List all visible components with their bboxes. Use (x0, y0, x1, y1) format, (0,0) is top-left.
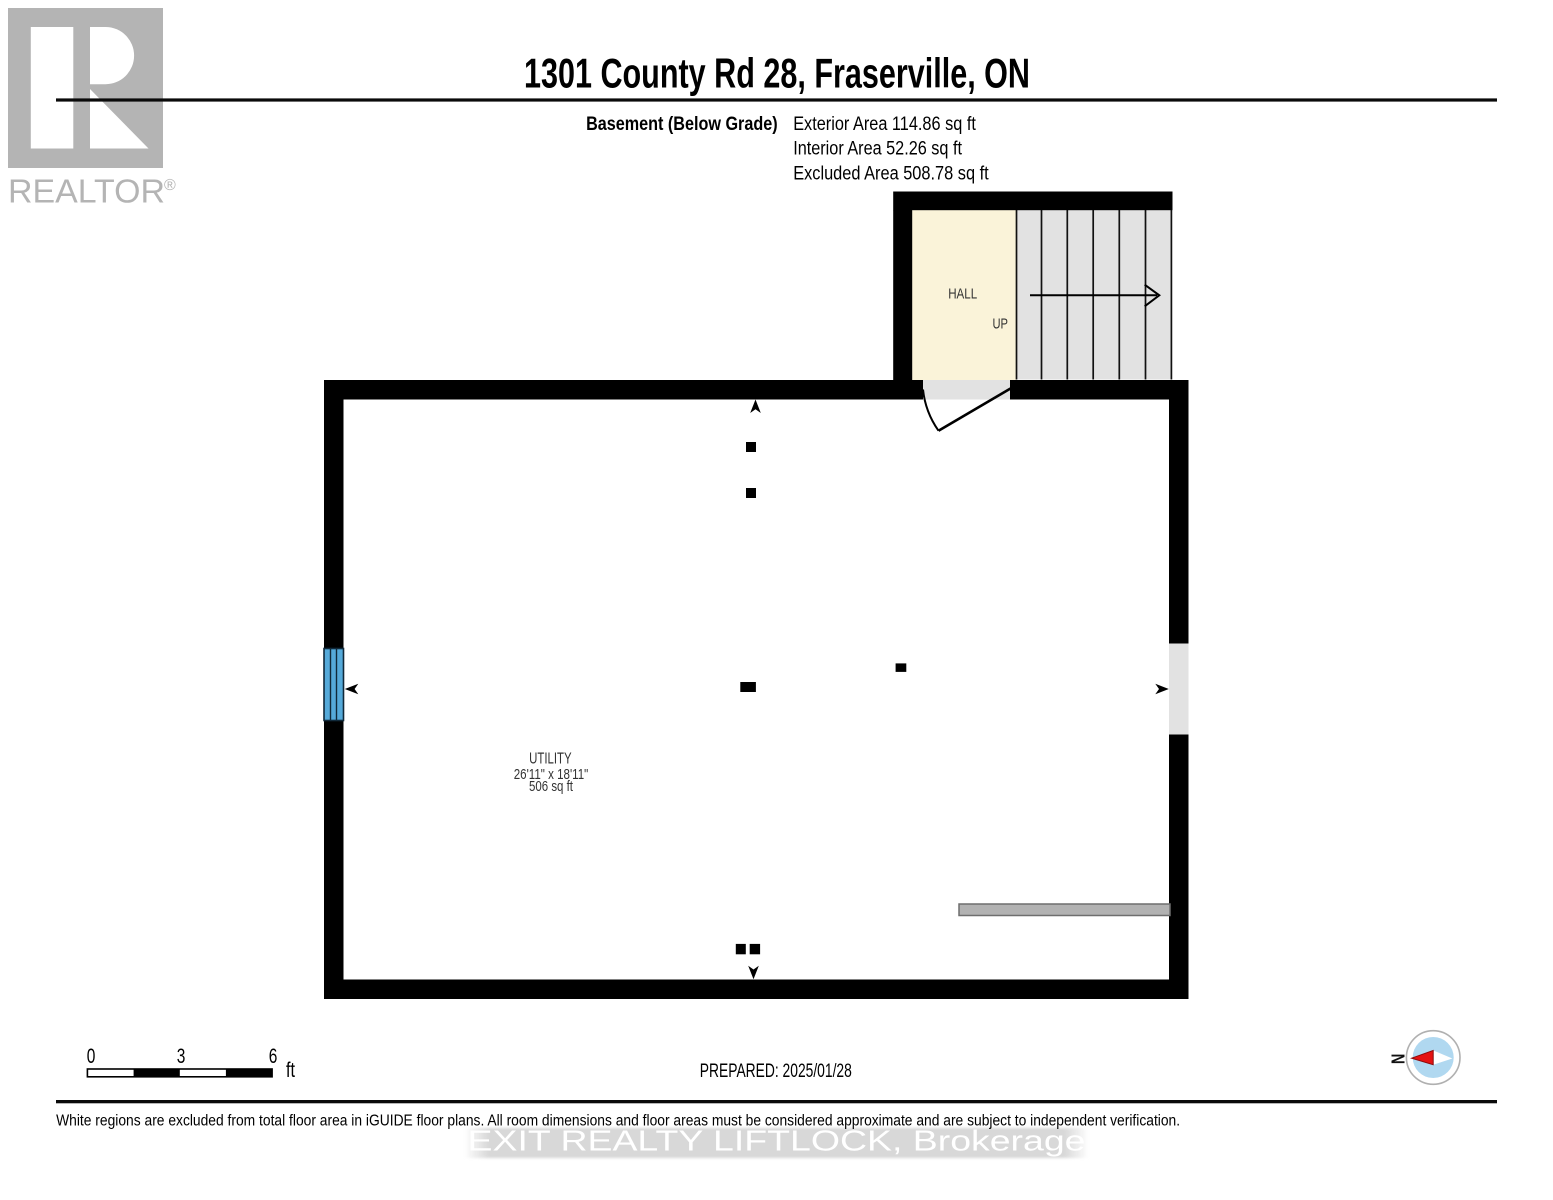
svg-text:REALTOR: REALTOR (8, 173, 165, 210)
svg-text:ft: ft (286, 1059, 295, 1082)
svg-text:N: N (1387, 1054, 1408, 1064)
svg-text:®: ® (164, 177, 176, 194)
svg-text:506 sq ft: 506 sq ft (529, 779, 573, 795)
svg-text:EXIT REALTY LIFTLOCK, Brokerag: EXIT REALTY LIFTLOCK, Brokerage (468, 1126, 1086, 1158)
svg-text:3: 3 (177, 1044, 186, 1068)
svg-text:1301 County Rd 28, Fraserville: 1301 County Rd 28, Fraserville, ON (524, 50, 1030, 97)
svg-text:White regions are excluded fro: White regions are excluded from total fl… (56, 1113, 1180, 1130)
svg-text:UP: UP (992, 317, 1008, 333)
svg-text:6: 6 (269, 1044, 278, 1068)
svg-text:Exterior Area 114.86 sq ft: Exterior Area 114.86 sq ft (793, 113, 976, 135)
svg-text:Interior Area 52.26 sq ft: Interior Area 52.26 sq ft (793, 138, 962, 160)
svg-text:HALL: HALL (948, 286, 977, 302)
svg-text:0: 0 (87, 1044, 96, 1068)
svg-text:Basement (Below Grade): Basement (Below Grade) (586, 113, 778, 135)
svg-text:PREPARED: 2025/01/28: PREPARED: 2025/01/28 (700, 1060, 852, 1082)
svg-text:Excluded Area 508.78 sq ft: Excluded Area 508.78 sq ft (793, 163, 989, 185)
svg-text:UTILITY: UTILITY (529, 751, 572, 768)
